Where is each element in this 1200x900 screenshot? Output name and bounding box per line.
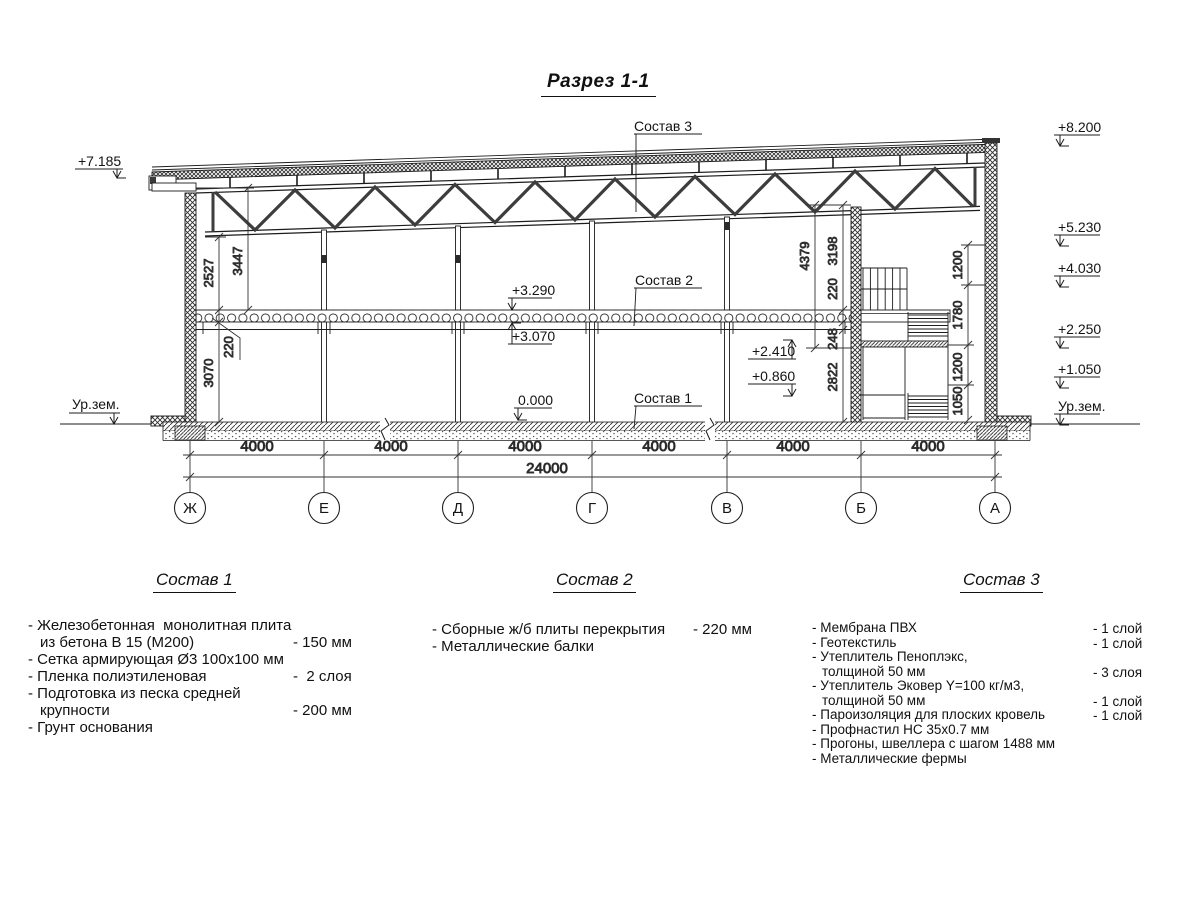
elevation-0860: +0.860	[748, 368, 796, 396]
legend-3-value: - 3 слоя	[1093, 665, 1142, 680]
legend-3-item: - Геотекстиль	[812, 636, 896, 651]
legend-3-item: - Утеплитель Эковер Y=100 кг/м3,	[812, 679, 1024, 694]
elevation-1050: +1.050	[1054, 361, 1101, 388]
legend-3-item: - Металлические фермы	[812, 752, 967, 767]
dim-220-right: 220	[825, 278, 840, 300]
legend-3-item: - Утеплитель Пеноплэкс,	[812, 650, 968, 665]
dim-3447: 3447	[230, 247, 245, 276]
elevation-7185: +7.185	[75, 153, 126, 178]
callout-sostav-3: Состав 3	[634, 118, 702, 212]
dim-4000-4: 4000	[642, 438, 675, 455]
svg-text:+0.860: +0.860	[752, 368, 795, 384]
legend-1-value: - 200 мм	[293, 702, 352, 719]
wall-axis-b	[851, 207, 861, 425]
svg-text:Состав 1: Состав 1	[634, 390, 692, 406]
axis-label-g: Г	[588, 500, 596, 517]
legend-3-item: - Профнастил НС 35х0.7 мм	[812, 723, 989, 738]
axis-label-e: Е	[319, 500, 329, 517]
legend-2-item: - Сборные ж/б плиты перекрытия	[432, 621, 665, 638]
dims-bottom: 4000 4000 4000 4000 4000 4000 24000	[183, 438, 1002, 492]
svg-text:+5.230: +5.230	[1058, 219, 1101, 235]
legend-3-item: - Мембрана ПВХ	[812, 621, 917, 636]
svg-text:Состав 3: Состав 3	[634, 118, 692, 134]
svg-text:0.000: 0.000	[518, 392, 553, 408]
stair-lower-flight	[908, 393, 948, 420]
dim-1050: 1050	[950, 387, 965, 416]
legend-3-item: - Пароизоляция для плоских кровель	[812, 708, 1045, 723]
legend-1-item: - Грунт основания	[28, 719, 153, 736]
legend-1-item: крупности	[40, 702, 110, 719]
dim-2527: 2527	[201, 259, 216, 288]
legend-3-heading: Состав 3	[960, 570, 1043, 593]
legend-1-item: - Железобетонная монолитная плита	[28, 617, 291, 634]
dim-4000-6: 4000	[911, 438, 944, 455]
section-drawing: 2527 3447 220 3070 4379 3198 220 248 282…	[0, 0, 1200, 560]
footing-left	[175, 426, 205, 440]
elevation-ground-right: Ур.зем.	[1054, 398, 1106, 425]
legend-3-item: толщиной 50 мм	[822, 665, 925, 680]
legend-1-item: из бетона В 15 (М200)	[40, 634, 194, 651]
stair-mid-landing	[861, 341, 948, 347]
dim-24000: 24000	[526, 460, 568, 477]
svg-text:+3.070: +3.070	[512, 328, 555, 344]
axis-label-d: Д	[453, 500, 463, 517]
dim-4379: 4379	[797, 242, 812, 271]
elevation-3290: +3.290	[508, 282, 555, 310]
svg-text:+8.200: +8.200	[1058, 119, 1101, 135]
drawing-sheet: Разрез 1-1	[0, 0, 1200, 900]
svg-text:Ур.зем.: Ур.зем.	[72, 396, 120, 412]
dim-1200-upper: 1200	[950, 251, 965, 280]
legend-3-item: - Прогоны, швеллера с шагом 1488 мм	[812, 737, 1055, 752]
svg-text:+4.030: +4.030	[1058, 260, 1101, 276]
legend-2-item: - Металлические балки	[432, 638, 594, 655]
dim-4000-5: 4000	[776, 438, 809, 455]
svg-text:Ур.зем.: Ур.зем.	[1058, 398, 1106, 414]
legend-3-value: - 1 слой	[1093, 708, 1142, 723]
dim-3070: 3070	[201, 359, 216, 388]
legend-1-item: - Сетка армирующая Ø3 100х100 мм	[28, 651, 284, 668]
legend-2-value: - 220 мм	[693, 621, 752, 638]
svg-text:Состав 2: Состав 2	[635, 272, 693, 288]
elevation-3070: +3.070	[508, 323, 555, 344]
elevation-ground-left: Ур.зем.	[69, 396, 123, 424]
dims-axis-a: 1200 1780 1200 1050	[948, 241, 985, 424]
dim-1780: 1780	[950, 301, 965, 330]
legend-2-heading: Состав 2	[553, 570, 636, 593]
legend-3-value: - 1 слой	[1093, 694, 1142, 709]
staircase	[861, 268, 948, 420]
legend-3-value: - 1 слой	[1093, 621, 1142, 636]
dim-3198: 3198	[825, 237, 840, 266]
dim-248: 248	[825, 328, 840, 350]
axis-bubbles: Ж Е Д Г В Б А	[175, 493, 1011, 524]
footing-right	[977, 426, 1007, 440]
callouts: Состав 3 Состав 2 Состав 1	[634, 118, 702, 429]
elevation-zero: 0.000	[514, 392, 553, 420]
legend-1-item: - Подготовка из песка средней	[28, 685, 241, 702]
legend-1-value: - 150 мм	[293, 634, 352, 651]
elevation-2250: +2.250	[1054, 321, 1101, 348]
elevation-5230: +5.230	[1054, 219, 1101, 246]
dim-1200-lower: 1200	[950, 353, 965, 382]
legend-3-value: - 1 слой	[1093, 636, 1142, 651]
wall-axis-a	[985, 143, 997, 425]
wall-axis-zh	[185, 193, 196, 425]
elevation-4030: +4.030	[1054, 260, 1101, 287]
dim-220-left: 220	[221, 336, 236, 358]
stair-lower-enclosure	[861, 347, 948, 420]
legend-1-item: - Пленка полиэтиленовая	[28, 668, 207, 685]
legend-1-value: - 2 слоя	[293, 668, 352, 685]
dim-4000-2: 4000	[374, 438, 407, 455]
parapet-cap	[982, 138, 1000, 143]
dim-4000-1: 4000	[240, 438, 273, 455]
elevation-8200: +8.200	[1054, 119, 1101, 146]
legend-3-item: толщиной 50 мм	[822, 694, 925, 709]
dim-4000-3: 4000	[508, 438, 541, 455]
axis-label-v: В	[722, 500, 732, 517]
axis-label-a: А	[990, 500, 1000, 517]
dim-2822: 2822	[825, 363, 840, 392]
svg-text:+1.050: +1.050	[1058, 361, 1101, 377]
axis-label-zh: Ж	[183, 500, 197, 517]
elevation-2410: +2.410	[748, 340, 796, 359]
svg-text:+3.290: +3.290	[512, 282, 555, 298]
svg-text:+2.250: +2.250	[1058, 321, 1101, 337]
axis-label-b: Б	[856, 500, 866, 517]
ground	[60, 418, 1140, 441]
svg-text:+7.185: +7.185	[78, 153, 121, 169]
legend-1-heading: Состав 1	[153, 570, 236, 593]
